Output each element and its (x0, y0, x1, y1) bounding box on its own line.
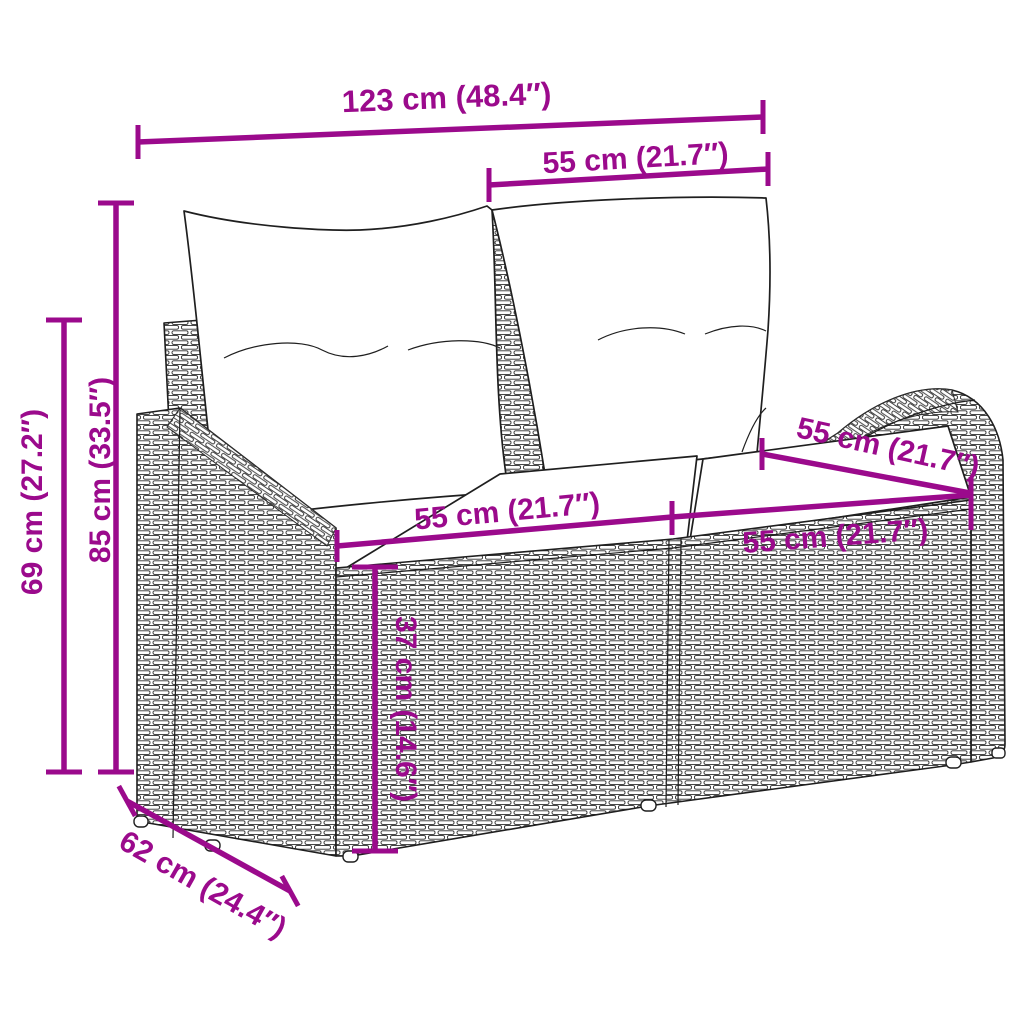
dimension-arm-height: 69 cm (27.2″) (16, 320, 82, 772)
sofa-foot (992, 748, 1005, 758)
dimension-arm-height-label: 69 cm (27.2″) (16, 409, 49, 595)
dimension-total-width-label: 123 cm (48.4″) (341, 76, 552, 119)
dimension-seat-height-label: 37 cm (14.6″) (389, 616, 422, 802)
dimension-total-height: 85 cm (33.5″) (84, 203, 134, 772)
sofa-foot (641, 800, 656, 811)
sofa-foot (946, 757, 961, 768)
diagram-canvas: 123 cm (48.4″) 55 cm (21.7″) 85 cm (33.5… (0, 0, 1024, 1024)
dimension-backrest-width: 55 cm (21.7″) (489, 137, 768, 202)
product-dimension-diagram: 123 cm (48.4″) 55 cm (21.7″) 85 cm (33.5… (0, 0, 1024, 1024)
sofa-foot (134, 816, 148, 827)
dimension-total-height-label: 85 cm (33.5″) (84, 377, 117, 563)
